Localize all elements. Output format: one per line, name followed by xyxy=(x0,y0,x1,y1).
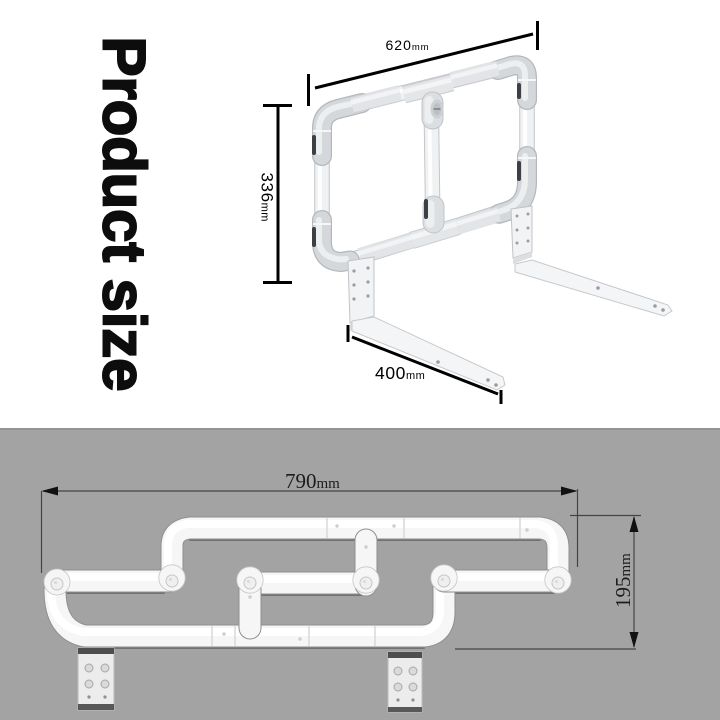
svg-text:Product size: Product size xyxy=(91,37,158,392)
